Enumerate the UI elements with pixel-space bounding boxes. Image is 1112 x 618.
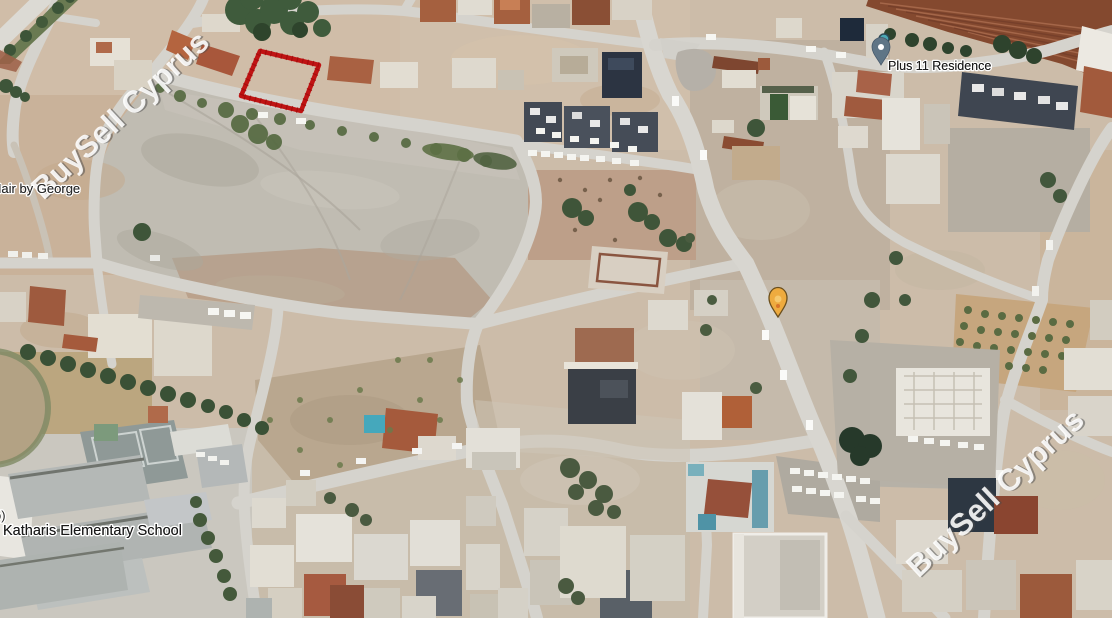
svg-text:Plus 11 Residence: Plus 11 Residence — [888, 59, 991, 73]
svg-text:o): o) — [0, 508, 6, 523]
svg-text:Hair by George: Hair by George — [0, 181, 80, 196]
svg-text:Katharis Elementary School: Katharis Elementary School — [3, 523, 182, 539]
